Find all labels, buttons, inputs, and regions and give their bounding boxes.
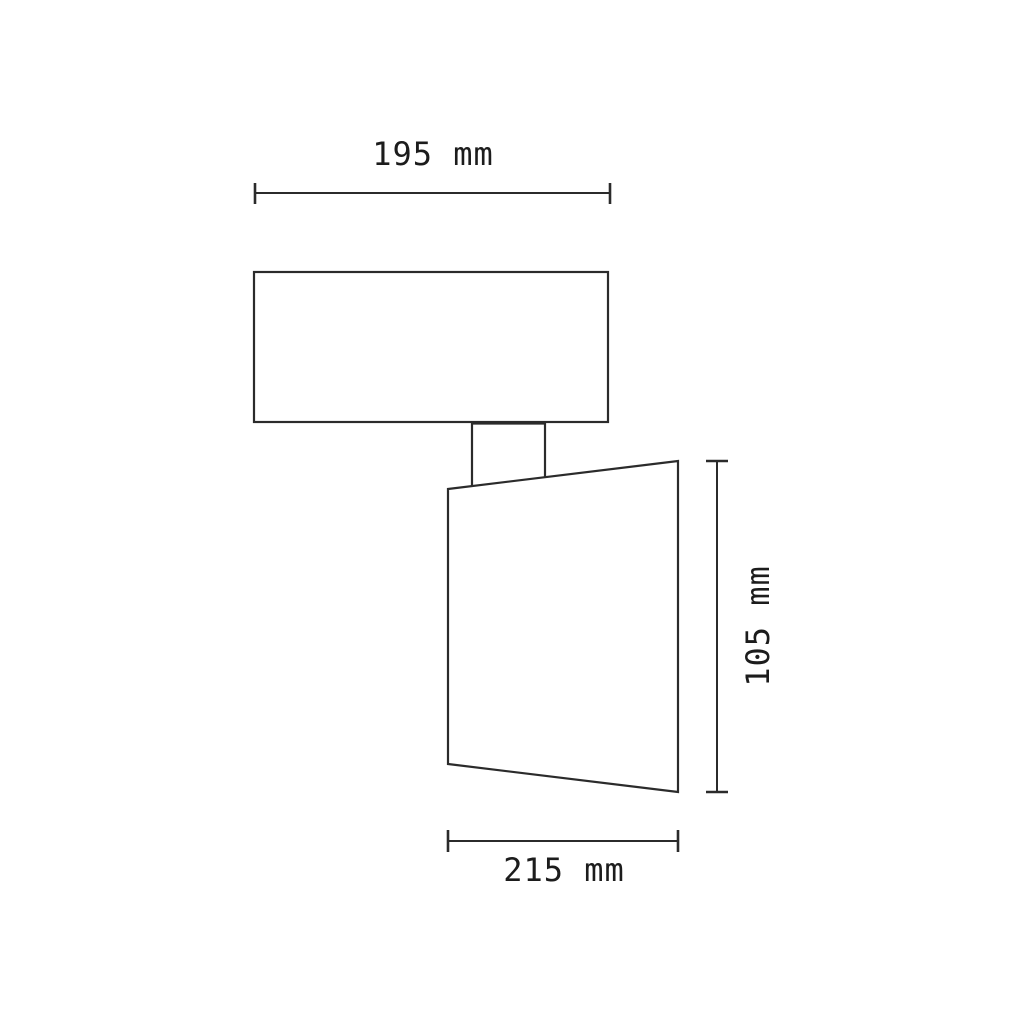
drawing-canvas: 195 mm 105 mm 215 mm bbox=[0, 0, 1024, 1024]
dimension-label-bottom-width: 215 mm bbox=[503, 851, 625, 889]
dimension-bottom-width: 215 mm bbox=[448, 830, 678, 889]
lamp-head-outline bbox=[448, 461, 678, 792]
pivot-connector-outline bbox=[471, 422, 546, 487]
mounting-plate-outline bbox=[254, 272, 608, 422]
dimension-top-width: 195 mm bbox=[255, 135, 610, 204]
dimension-label-top-width: 195 mm bbox=[372, 135, 494, 173]
dimension-drawing: 195 mm 105 mm 215 mm bbox=[0, 0, 1024, 1024]
dimension-side-height: 105 mm bbox=[706, 461, 777, 792]
dimension-label-side-height: 105 mm bbox=[739, 565, 777, 687]
